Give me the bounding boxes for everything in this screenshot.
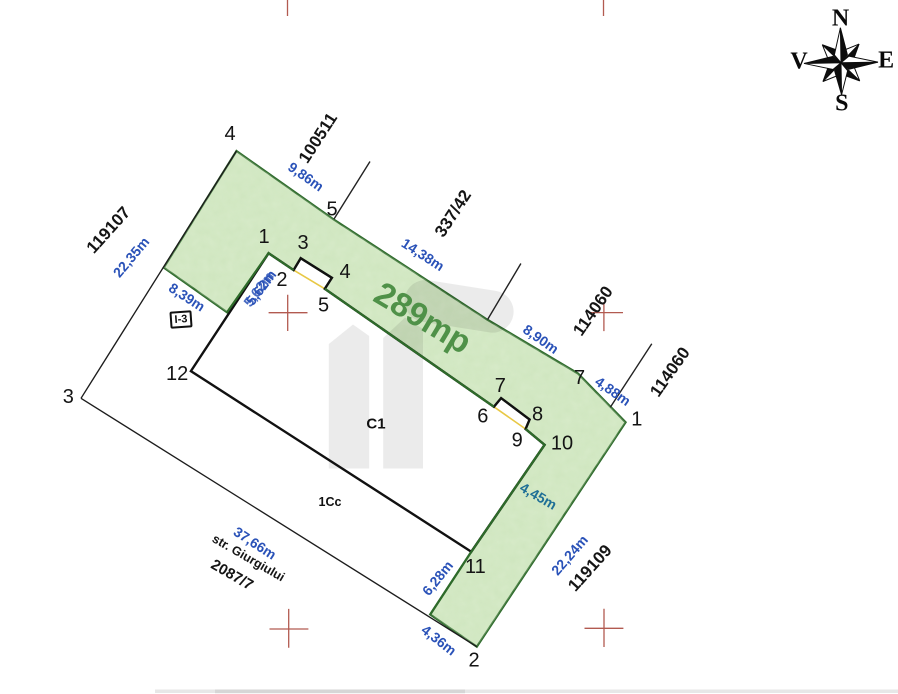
svg-text:2: 2 [276, 269, 287, 291]
svg-text:4: 4 [339, 261, 350, 283]
svg-text:10: 10 [551, 433, 573, 455]
svg-text:V: V [790, 48, 808, 74]
svg-text:I-3: I-3 [174, 313, 188, 326]
svg-text:3: 3 [297, 232, 308, 254]
svg-text:1: 1 [258, 226, 269, 248]
svg-text:6: 6 [477, 405, 488, 427]
svg-text:11: 11 [465, 556, 486, 578]
svg-text:12: 12 [166, 363, 188, 385]
svg-text:9: 9 [512, 430, 523, 452]
svg-text:N: N [832, 6, 850, 32]
svg-text:2: 2 [469, 650, 480, 672]
svg-text:1: 1 [631, 409, 642, 431]
svg-text:C1: C1 [366, 416, 385, 433]
svg-text:5: 5 [318, 294, 329, 316]
svg-text:3: 3 [63, 386, 74, 408]
svg-text:E: E [878, 48, 894, 74]
svg-text:1Cc: 1Cc [319, 495, 342, 509]
svg-text:7: 7 [574, 367, 585, 389]
svg-text:4: 4 [224, 123, 235, 145]
svg-text:8: 8 [532, 404, 543, 426]
svg-text:7: 7 [495, 375, 506, 397]
svg-text:5: 5 [326, 198, 337, 220]
